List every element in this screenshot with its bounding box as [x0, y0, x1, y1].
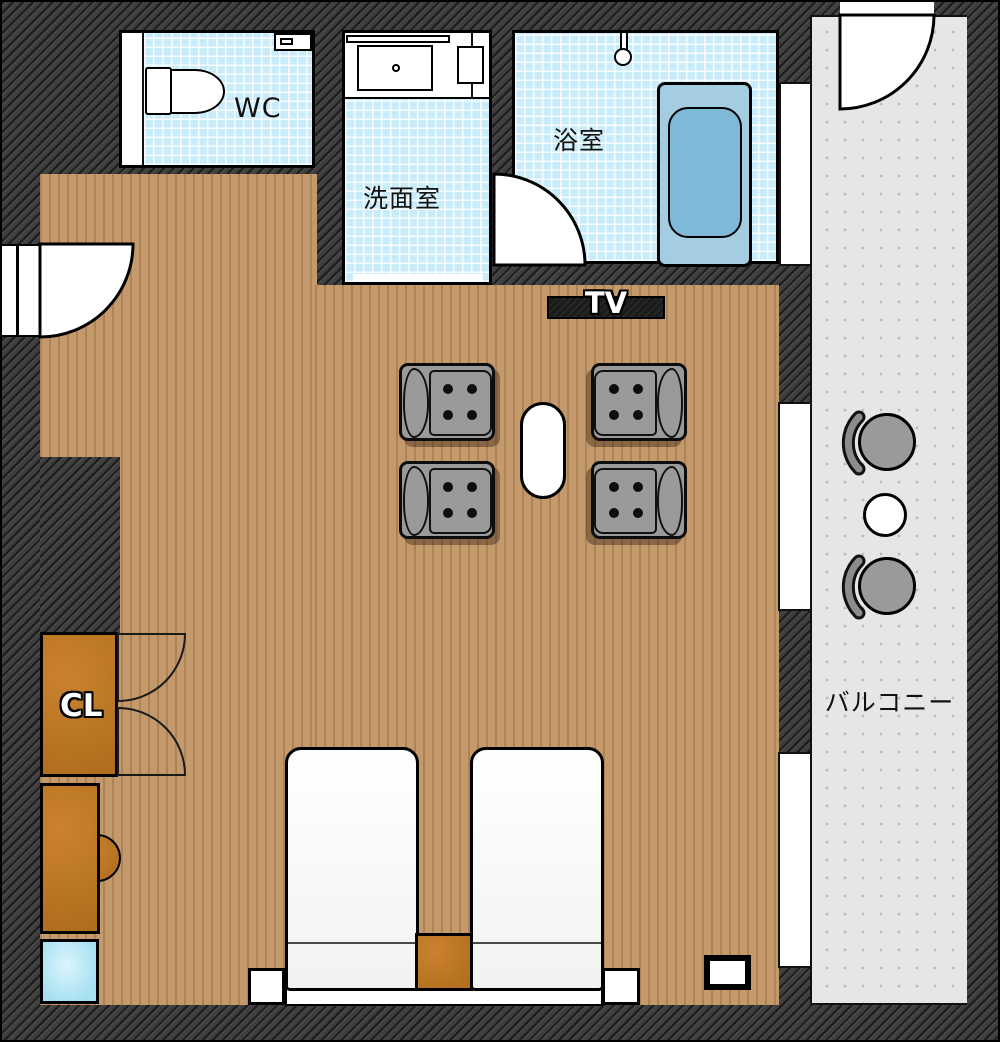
nightstand-icon [415, 933, 473, 991]
bed-blanket-line [473, 942, 601, 944]
tv-label: TV [547, 286, 665, 320]
bed-blanket-line [288, 942, 416, 944]
armchair-seat [429, 370, 492, 436]
armchair-seat [594, 370, 657, 436]
armchair-seat [594, 468, 657, 534]
closet-door-swing-icon [118, 708, 185, 775]
balcony-door-swing-icon [840, 15, 934, 109]
armchair-icon [399, 363, 495, 441]
bathroom-door-swing-icon [494, 174, 585, 265]
closet-door-swing-icon [118, 634, 185, 701]
armchair-armrest [403, 368, 429, 438]
bed-step-right [602, 968, 640, 1005]
bed-icon [285, 747, 419, 991]
coffee-table-icon [520, 402, 566, 499]
bed-icon [470, 747, 604, 991]
armchair-armrest [657, 466, 683, 536]
floor-plan: WC 洗面室 浴室 CL バルコニー [0, 0, 1000, 1042]
armchair-icon [591, 363, 687, 441]
armchair-seat [429, 468, 492, 534]
armchair-icon [591, 461, 687, 539]
outlet-box-icon [704, 955, 751, 990]
armchair-icon [399, 461, 495, 539]
armchair-armrest [657, 368, 683, 438]
entrance-door-swing-icon [40, 244, 133, 337]
armchair-armrest [403, 466, 429, 536]
bed-step-left [248, 968, 285, 1005]
